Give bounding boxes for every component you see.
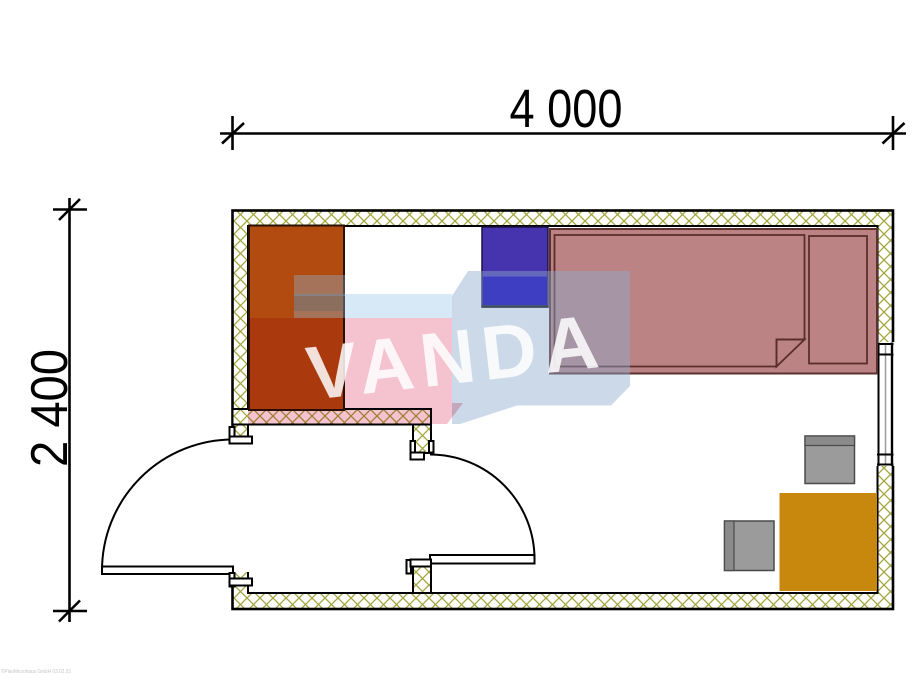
svg-text:2 400: 2 400 xyxy=(21,349,79,467)
svg-text:©PlanMicrohaus GmbH 03.02.03: ©PlanMicrohaus GmbH 03.02.03 xyxy=(1,668,71,675)
svg-text:4 000: 4 000 xyxy=(510,79,623,139)
